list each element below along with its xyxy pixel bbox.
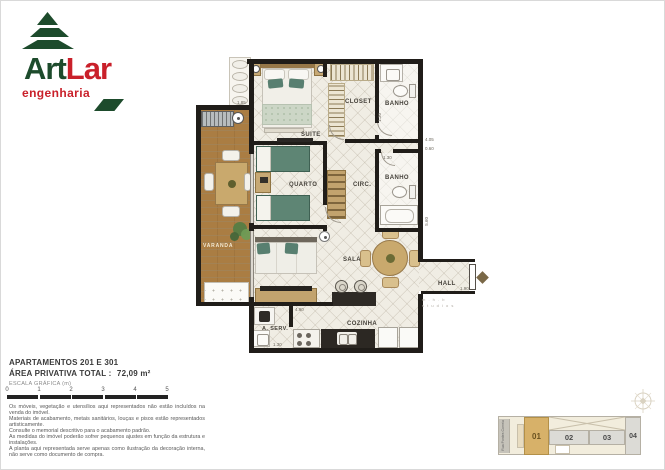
private-area-value: 72,09 m² [117,369,151,378]
quarto-bed-1 [256,146,310,172]
scale-tick: 1 [35,387,43,393]
laundry-tank [253,330,270,347]
dining-chair [382,277,399,288]
bathtub [380,205,418,225]
brand-name: ArtLar [24,53,111,84]
varanda-chair [222,206,240,217]
logo-tree-icon [37,12,58,25]
bar-stool [354,280,367,293]
wall [196,302,333,306]
suite-accent-pillow [268,78,284,89]
dim-hall: 1.90 [460,287,469,292]
disclaimer-line: Os móveis, vegetação e utensílios aqui r… [9,404,205,416]
dim-circ-a: 4.05 [425,138,434,143]
sofa-pillow [285,243,299,255]
bar-counter [332,292,376,306]
scale-segment [105,395,136,399]
room-label-suite: SUITE [301,132,321,138]
suite-tv-panel [277,138,313,142]
private-area-label: ÁREA PRIVATIVA TOTAL : [9,369,111,378]
room-label-cozinha: COZINHA [347,321,377,327]
compass-icon [615,385,661,419]
keyplan: Rua Pontes Correia 01 02 03 04 [498,416,641,455]
kitchen-sink [337,332,357,345]
wall [249,149,254,154]
planter-stone [232,72,248,81]
entry-door-knob [476,271,489,284]
dining-table-round [372,240,408,276]
unit-03: 03 [589,430,625,445]
unit-04: 04 [625,417,641,455]
washing-machine [254,307,275,325]
closet-rack [330,64,374,81]
toilet [393,85,408,97]
refrigerator [399,327,419,348]
room-label-quarto: QUARTO [289,182,317,188]
wall [393,149,419,153]
flyer-page: ArtLar engenharia [0,0,665,470]
disclaimer-line: Materiais de acabamento, metais sanitári… [9,416,205,428]
bathroom-sink-counter [380,64,403,82]
wall [249,305,254,353]
toilet-tank [409,185,416,199]
logo-tree-icon [22,40,74,49]
quarto-desk [255,172,271,193]
varanda-chair [222,150,240,161]
dim-aserv: 1.30 [273,343,282,348]
wall [375,149,379,231]
varanda-bench [204,282,249,303]
grill [201,111,234,127]
planter-stone [232,60,248,69]
wall [251,348,423,353]
quarto-bed-2 [256,195,310,221]
apartments-title: APARTAMENTOS 201 E 301 [9,358,118,367]
wall [375,135,379,143]
scale-tick: 3 [99,387,107,393]
studio-watermark: s t u d i o s [422,304,454,308]
unit-02-label: 02 [565,433,573,442]
scale-segment [7,395,38,399]
room-label-area-servico: A. SERV. [262,327,288,333]
wall [289,305,293,327]
room-label-closet: CLOSET [345,99,372,105]
wall [345,139,418,143]
building-notch [555,445,570,454]
artlar-logo: ArtLar engenharia [1,1,161,121]
room-label-banho-social: BANHO [385,175,409,181]
unit-02: 02 [549,430,589,445]
brand-name-lar: Lar [66,51,111,86]
scale-tick: 5 [163,387,171,393]
scale-segment [72,395,103,399]
stove [293,329,320,348]
dim-sala: 5.60 [425,217,430,226]
unit-01-label: 01 [532,432,541,441]
tv-screen [260,286,312,291]
scale-tick: 0 [3,387,11,393]
suite-accent-pillow [289,78,305,88]
studio-watermark: m . h . b [422,298,445,302]
scale-segment [137,395,168,399]
wall [196,105,201,306]
wall [196,105,254,110]
private-area-line: ÁREA PRIVATIVA TOTAL : 72,09 m² [9,369,151,378]
street-name: Rua Pontes Correia [501,420,505,451]
toilet [392,186,407,198]
wall [251,225,327,229]
wall [249,59,254,149]
wall [421,259,475,262]
logo-parallelogram-icon [94,99,124,111]
disclaimer-line: A planta aqui representada serve apenas … [9,446,205,458]
brand-name-art: Art [24,51,66,86]
toilet-tank [409,84,416,98]
dim-banho-social: 1.30 [383,156,392,161]
wall [249,297,254,304]
refrigerator [378,327,398,348]
brand-subtitle: engenharia [22,87,90,99]
wall [323,141,327,205]
disclaimer-text: Os móveis, vegetação e utensílios aqui r… [9,404,205,458]
suite-foot-bench [264,128,304,133]
unit-04-label: 04 [629,433,637,440]
wall [249,223,254,231]
wall [247,59,423,64]
room-label-hall: HALL [438,281,456,287]
dim-cozinha: 4.90 [295,308,304,313]
unit-03-label: 03 [603,433,611,442]
room-label-banho-suite: BANHO [385,101,409,107]
scale-segment [40,395,71,399]
room-label-varanda: VARANDA [203,244,233,249]
suite-blanket [262,104,312,125]
unit-01: 01 [524,417,549,455]
varanda-sink [232,112,244,124]
building-step [517,424,524,448]
scale-tick: 4 [131,387,139,393]
room-label-sala: SALA [343,257,361,263]
wall [323,59,327,77]
wall [375,228,419,232]
logo-tree-icon [30,28,69,37]
wall [375,149,381,153]
floor-lamp [319,231,330,242]
dim-banho-suite: 1.30 [378,113,383,122]
planter-stone [232,84,248,93]
kitchen-counter [321,329,375,348]
sofa-pillow [257,242,271,254]
varanda-chair [204,173,214,191]
room-label-circ: CIRC. [353,182,371,188]
street-strip: Rua Pontes Correia [499,419,510,453]
scale-tick: 2 [67,387,75,393]
bar-stool [335,280,348,293]
plant [230,232,239,241]
dim-circ-b: 0.60 [425,147,434,152]
dining-chair [360,250,371,267]
roof-brace [549,417,625,430]
disclaimer-line: As medidas do imóvel poderão sofrer pequ… [9,434,205,446]
dim-varanda-sink: 1.85 [237,101,246,106]
